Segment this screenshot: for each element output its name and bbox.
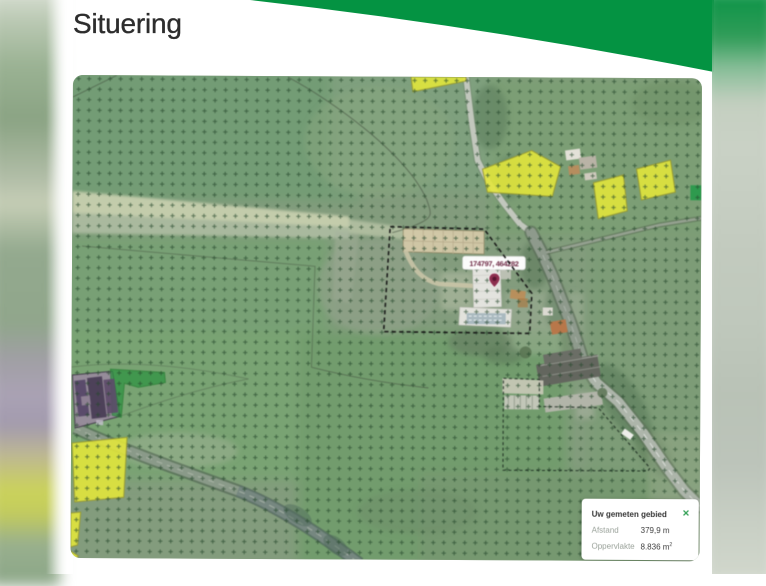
svg-text:174797, 464282: 174797, 464282 xyxy=(469,259,518,268)
